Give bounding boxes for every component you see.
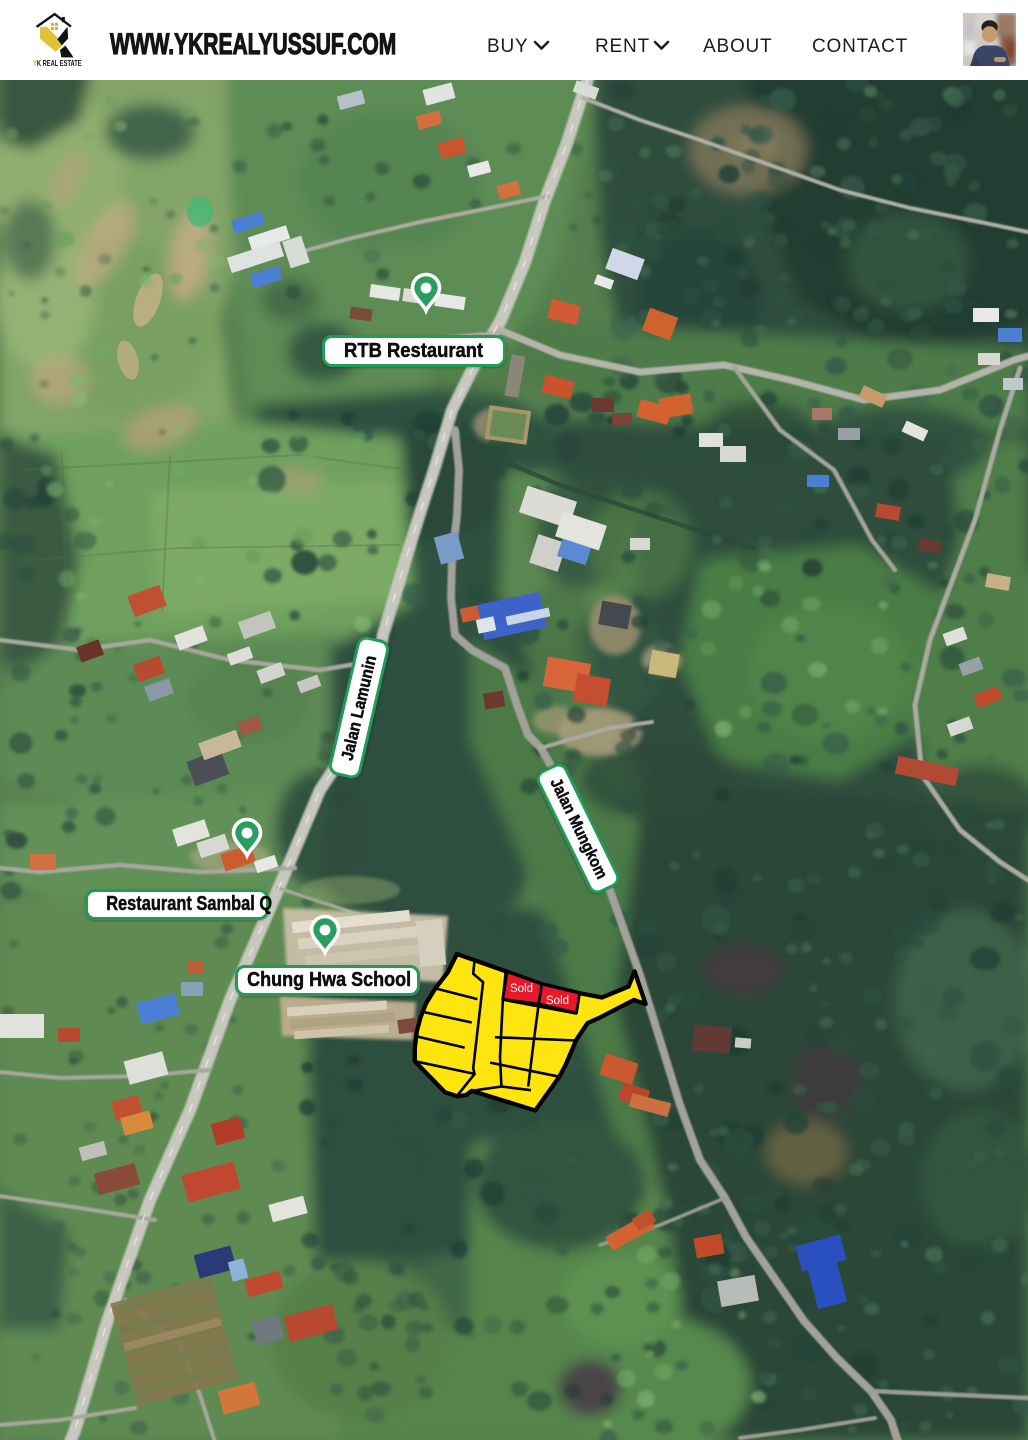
- svg-text:Sold: Sold: [510, 983, 533, 995]
- svg-text:Sold: Sold: [546, 995, 569, 1007]
